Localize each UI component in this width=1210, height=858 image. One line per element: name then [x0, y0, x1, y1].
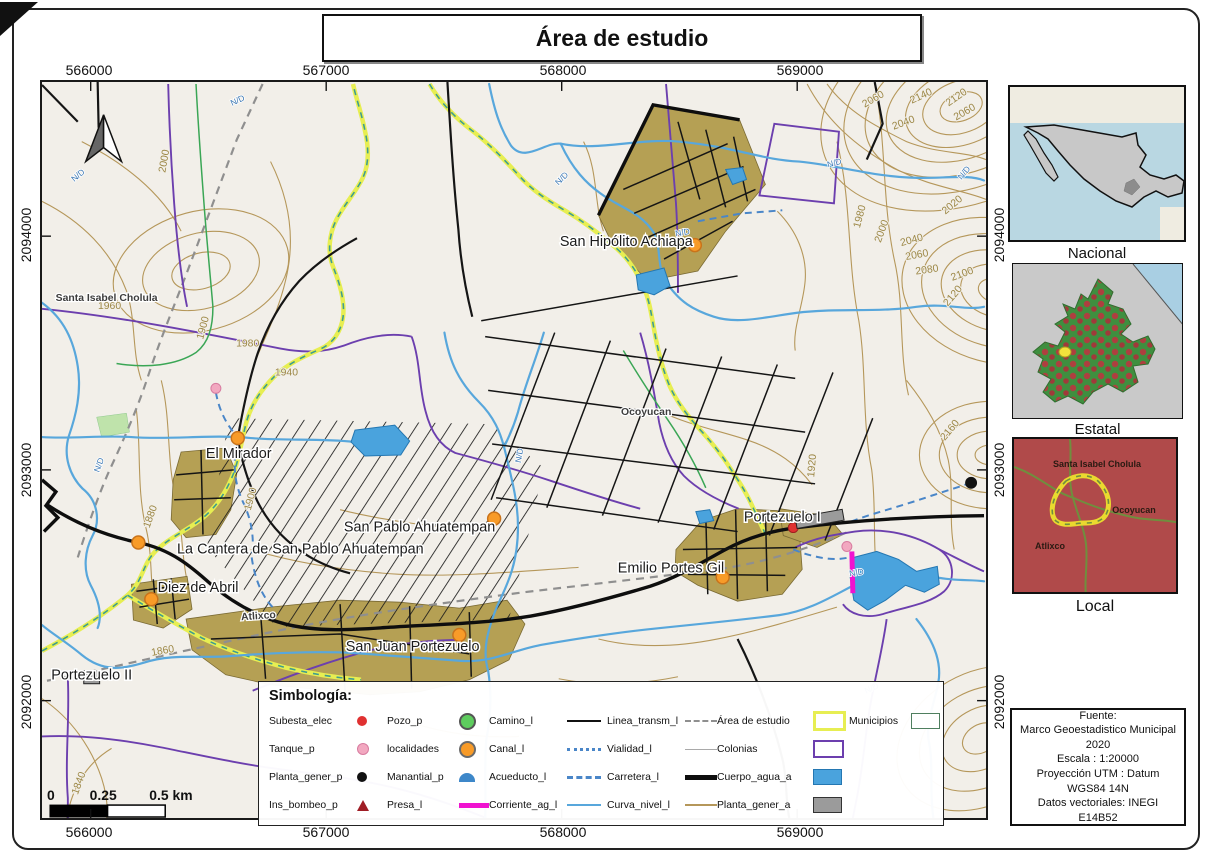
aqueduct-line-icon: [567, 776, 607, 779]
plant-marker: [965, 477, 977, 489]
x-axis-label-bottom-2: 567000: [303, 824, 350, 840]
svg-text:N/D: N/D: [849, 566, 865, 578]
legend-box: Simbología: Subesta_elec Pozo_p Camino_l…: [258, 681, 944, 826]
legend-label: Manantial_p: [387, 772, 459, 783]
svg-text:1940: 1940: [275, 367, 298, 378]
svg-text:N/D: N/D: [553, 170, 570, 187]
svg-text:N/D: N/D: [69, 167, 87, 184]
inset-estatal-map: [1012, 263, 1183, 419]
mexico-map: [1010, 87, 1186, 242]
legend-label: Canal_l: [489, 744, 567, 755]
inset-estatal-caption: Estatal: [1012, 421, 1183, 438]
legend-label: Pozo_p: [387, 716, 459, 727]
x-axis-label-top-2: 567000: [303, 62, 350, 78]
tank-marker-2: [842, 542, 852, 552]
label-san-juan: San Juan Portezuelo: [346, 639, 480, 655]
local-municipios-map: Santa Isabel Cholula Ocoyucan Atlixco: [1014, 439, 1178, 594]
x-axis-label-top-1: 566000: [66, 62, 113, 78]
label-santa-isabel: Santa Isabel Cholula: [56, 293, 158, 304]
x-axis-label-top-3: 568000: [540, 62, 587, 78]
svg-text:1840: 1840: [70, 770, 88, 796]
inset-local-caption: Local: [1012, 598, 1178, 616]
legend-title: Simbología:: [269, 688, 935, 704]
municipios-icon: [911, 713, 943, 729]
svg-text:2040: 2040: [891, 114, 917, 132]
x-axis-label-bottom-4: 569000: [777, 824, 824, 840]
svg-text:1900: 1900: [195, 315, 212, 340]
source-line: Fuente:: [1012, 709, 1184, 724]
stream-line-icon: [567, 804, 607, 806]
corner-mark: [0, 0, 44, 40]
svg-text:2020: 2020: [940, 194, 965, 217]
puebla-state-map: [1013, 264, 1183, 419]
label-ocoyucan: Ocoyucan: [621, 407, 671, 418]
spring-icon: [459, 773, 489, 782]
contour-line-icon: [685, 804, 717, 806]
vialidad-line-icon: [685, 749, 717, 750]
north-arrow-icon: [86, 115, 122, 162]
label-emilio-portes: Emilio Portes Gil: [618, 560, 724, 576]
map-title-box: Área de estudio: [322, 14, 922, 62]
dam-line-icon: [459, 803, 489, 808]
tank-marker: [211, 383, 221, 393]
label-la-cantera: La Cantera de San Pablo Ahuatempan: [177, 541, 424, 557]
water-body-icon: [813, 769, 849, 785]
svg-text:2100: 2100: [950, 265, 976, 283]
legend-label: Corriente_ag_l: [489, 800, 567, 811]
svg-text:N/D: N/D: [229, 93, 246, 108]
plant-area-icon: [813, 797, 849, 813]
page-title: Área de estudio: [536, 25, 709, 52]
svg-text:2000: 2000: [157, 149, 172, 174]
canal-line-icon: [567, 748, 607, 751]
local-label-ocoyucan: Ocoyucan: [1112, 505, 1156, 515]
legend-label: Camino_l: [489, 716, 567, 727]
scale-bar: 0 0.25 0.5 km: [47, 787, 193, 817]
legend-label: Ins_bombeo_p: [269, 800, 357, 811]
pump-station-icon: [357, 800, 387, 811]
legend-label: Planta_gener_a: [717, 800, 813, 811]
legend-label: Vialidad_l: [607, 744, 685, 755]
label-san-hipolito: San Hipólito Achiapa: [560, 234, 694, 250]
svg-text:0.5 km: 0.5 km: [149, 787, 192, 803]
svg-text:N/D: N/D: [92, 456, 106, 473]
y-axis-label-right-3: 2092000: [991, 675, 1007, 730]
label-san-pablo: San Pablo Ahuatempan: [344, 520, 495, 536]
legend-label: Carretera_l: [607, 772, 685, 783]
svg-text:0: 0: [47, 787, 55, 803]
x-axis-label-bottom-1: 566000: [66, 824, 113, 840]
source-line: Marco Geoestadistico Municipal: [1012, 723, 1184, 738]
legend-label: localidades: [387, 744, 459, 755]
local-label-atlixco: Atlixco: [1035, 541, 1066, 551]
y-axis-label-left-2: 2093000: [18, 443, 34, 498]
source-line: E14B52: [1012, 811, 1184, 826]
legend-label: Municipios: [849, 716, 911, 727]
legend-label: Presa_l: [387, 800, 459, 811]
svg-text:2140: 2140: [909, 87, 935, 107]
inset-local-map: Santa Isabel Cholula Ocoyucan Atlixco: [1012, 437, 1178, 594]
plant-point-icon: [357, 772, 387, 782]
legend-label: Tanque_p: [269, 744, 357, 755]
source-line: 2020: [1012, 738, 1184, 753]
svg-text:N/D: N/D: [955, 164, 972, 182]
legend-label: Subesta_elec: [269, 716, 357, 727]
source-line: Datos vectoriales: INEGI: [1012, 796, 1184, 811]
path-line-icon: [567, 720, 607, 722]
highway-line-icon: [685, 775, 717, 780]
legend-label: Cuerpo_agua_a: [717, 772, 813, 783]
colonias-icon: [813, 740, 849, 758]
x-axis-label-top-4: 569000: [777, 62, 824, 78]
svg-text:2000: 2000: [873, 218, 891, 244]
inset-nacional-map: [1008, 85, 1186, 242]
svg-text:2160: 2160: [939, 418, 962, 443]
study-area-icon: [813, 711, 849, 731]
svg-text:2040: 2040: [899, 232, 924, 249]
highlight-municipality-dot: [1059, 347, 1071, 357]
svg-text:1880: 1880: [142, 504, 160, 530]
legend-label: Acueducto_l: [489, 772, 567, 783]
source-info-box: Fuente: Marco Geoestadistico Municipal 2…: [1010, 708, 1186, 826]
legend-label: Linea_transm_l: [607, 716, 685, 727]
svg-text:2080: 2080: [915, 263, 940, 277]
well-icon: [459, 713, 489, 730]
source-line: WGS84 14N: [1012, 782, 1184, 797]
tank-icon: [357, 743, 387, 755]
svg-text:0.25: 0.25: [90, 787, 117, 803]
label-portezuelo-2: Portezuelo II: [51, 668, 132, 684]
svg-text:2120: 2120: [942, 284, 965, 309]
svg-text:2060: 2060: [905, 248, 930, 263]
source-line: Escala : 1:20000: [1012, 752, 1184, 767]
y-axis-label-right-1: 2094000: [991, 208, 1007, 263]
legend-label: Curva_nivel_l: [607, 800, 685, 811]
substation-icon: [357, 716, 387, 726]
x-axis-label-bottom-3: 568000: [540, 824, 587, 840]
source-line: Proyección UTM : Datum: [1012, 767, 1184, 782]
label-portezuelo-1: Portezuelo I: [744, 510, 821, 526]
label-el-mirador: El Mirador: [206, 446, 272, 462]
svg-text:1920: 1920: [806, 453, 819, 477]
legend-label: Planta_gener_p: [269, 772, 357, 783]
local-label-santa-isabel: Santa Isabel Cholula: [1053, 459, 1142, 469]
label-diez-de-abril: Diez de Abril: [158, 580, 239, 596]
y-axis-label-left-1: 2094000: [18, 208, 34, 263]
y-axis-label-right-2: 2093000: [991, 443, 1007, 498]
svg-text:1980: 1980: [852, 204, 869, 229]
legend-label: Área de estudio: [717, 716, 813, 727]
svg-text:1980: 1980: [236, 339, 259, 350]
transmission-line-icon: [685, 720, 717, 722]
legend-label: Colonias: [717, 744, 813, 755]
y-axis-label-left-3: 2092000: [18, 675, 34, 730]
inset-nacional-caption: Nacional: [1008, 245, 1186, 262]
svg-text:2060: 2060: [861, 89, 887, 110]
locality-icon: [459, 741, 489, 758]
